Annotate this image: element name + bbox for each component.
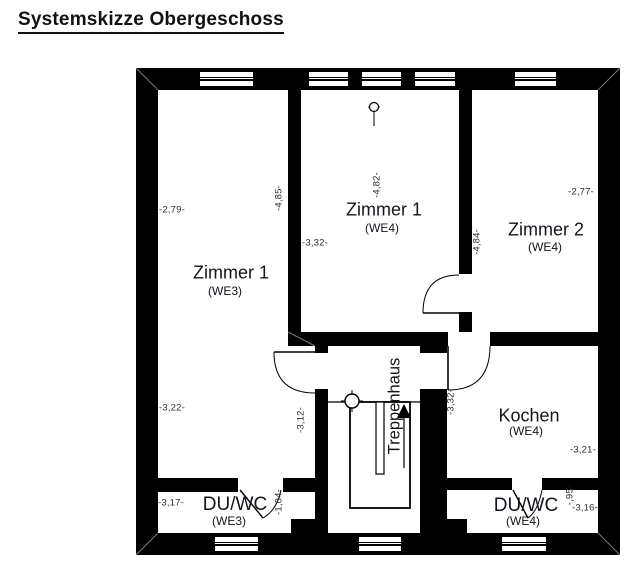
room-label-zimmer1-we4: Zimmer 1 [346, 200, 422, 221]
room-unit-kochen: (WE4) [509, 424, 543, 438]
dim-zimmer2-we4-width: -2,77- [568, 187, 594, 198]
dim-zimmer2-we4-height: -4,84- [472, 229, 483, 255]
room-label-zimmer1-we3: Zimmer 1 [193, 263, 269, 284]
dim-zimmer1-we4-height: -4,82- [372, 172, 383, 198]
page: { "title": "Systemskizze Obergeschoss", … [0, 0, 640, 570]
room-label-duwc-we3: DU/WC [203, 494, 267, 516]
dim-zimmer1-we3-width-top: -2,79- [159, 205, 185, 216]
dim-hall-we4-height: -3,32- [446, 389, 457, 415]
room-unit-zimmer1-we3: (WE3) [208, 284, 242, 298]
dim-zimmer1-we3-width-bottom: -3,22- [159, 403, 185, 414]
dim-duwc-we3-width: -3,17- [158, 498, 184, 509]
dim-zimmer1-we3-lower-height: -3,12- [296, 407, 307, 433]
room-unit-duwc-we4: (WE4) [506, 514, 540, 528]
room-unit-zimmer1-we4: (WE4) [365, 221, 399, 235]
survey-point-small-icon [368, 103, 380, 127]
room-label-zimmer2-we4: Zimmer 2 [508, 220, 584, 241]
door-kochen [448, 346, 490, 390]
door-we3-entry [274, 352, 315, 393]
dim-duwc-we3-height: -1,04- [274, 489, 285, 515]
plan-linework [0, 0, 640, 570]
door-zimmer2 [423, 275, 459, 313]
room-unit-duwc-we3: (WE3) [212, 514, 246, 528]
dim-zimmer1-we3-height: -4,85- [274, 185, 285, 211]
dim-kochen-width: -3,21- [570, 445, 596, 456]
room-unit-zimmer2-we4: (WE4) [528, 240, 562, 254]
dim-duwc-we4-width: -3,16- [572, 503, 598, 514]
room-label-treppenhaus: Treppenhaus [386, 358, 405, 455]
dim-zimmer1-we4-width: -3,32- [302, 238, 328, 249]
